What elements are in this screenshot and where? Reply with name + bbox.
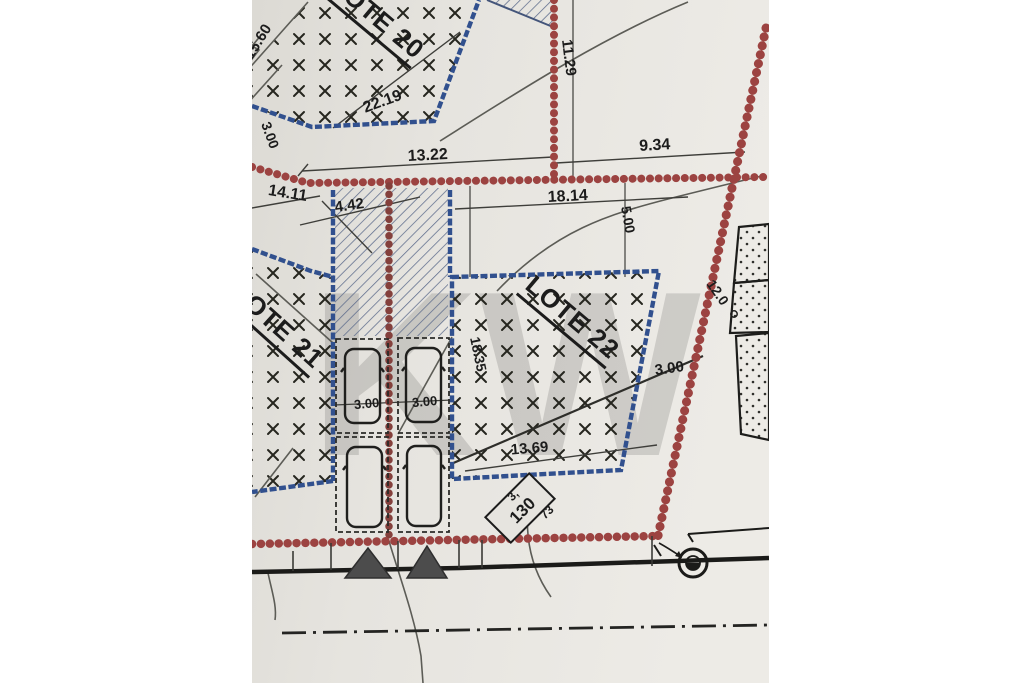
dim-9-34: 9.34 [639,136,671,155]
dim-18-14: 18.14 [547,187,588,206]
site-plan-svg: KW [0,0,1024,683]
screenshot-root: KW [0,0,1024,683]
dim-3-00-stall-right: 3.00 [411,393,438,410]
dim-13-22: 13.22 [407,146,448,165]
dim-13-69: 13.69 [510,438,549,458]
lote-21-region [252,249,333,492]
dim-3-00-stall-left: 3.00 [353,395,380,412]
